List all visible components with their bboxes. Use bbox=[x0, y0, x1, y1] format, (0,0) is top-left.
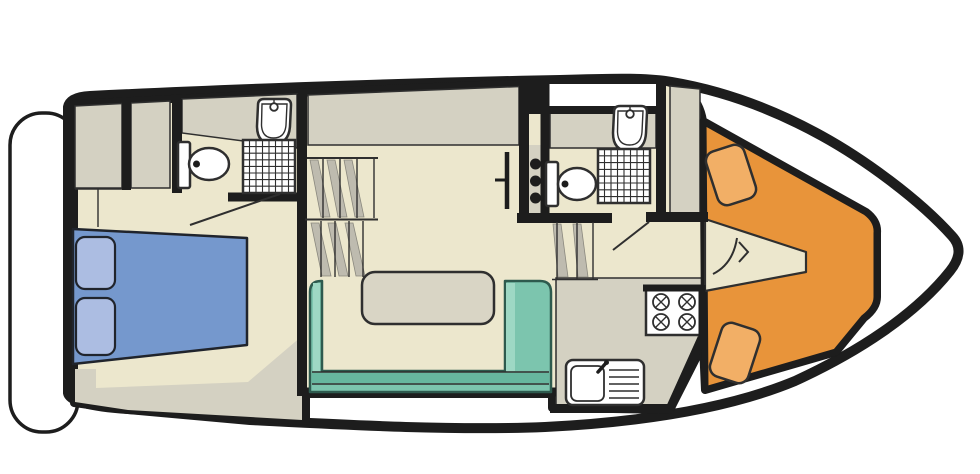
pillow bbox=[76, 237, 115, 289]
boat-floor-plan bbox=[0, 0, 980, 474]
sink-tap-head bbox=[604, 360, 609, 365]
sofa-back-right bbox=[506, 283, 515, 371]
skylight-hatch bbox=[549, 84, 657, 108]
sofa-front-band bbox=[312, 373, 549, 383]
wardrobe bbox=[131, 101, 170, 188]
coat-hook bbox=[530, 159, 541, 170]
saloon-table bbox=[362, 272, 494, 324]
toilet-flush bbox=[562, 181, 569, 188]
toilet-cistern bbox=[546, 162, 558, 206]
corridor-end-wall bbox=[519, 112, 529, 222]
washbasin-icon bbox=[613, 106, 647, 151]
bow-cabinet bbox=[670, 86, 700, 214]
wardrobe bbox=[75, 104, 122, 189]
coat-hook bbox=[530, 193, 541, 204]
washbasin-icon bbox=[257, 99, 291, 144]
aft-cabin bbox=[73, 229, 247, 364]
pillow bbox=[76, 298, 115, 355]
sofa-back-left bbox=[313, 283, 320, 371]
coat-hook bbox=[530, 176, 541, 187]
toilet-flush bbox=[193, 161, 200, 168]
corridor-side-cabinet bbox=[308, 87, 519, 146]
